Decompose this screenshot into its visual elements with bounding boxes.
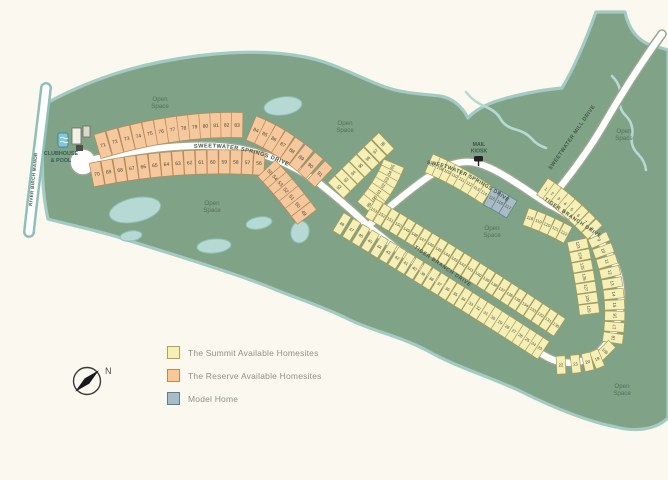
open-space-label: OpenSpace [613, 383, 631, 397]
lot-number: 65 [152, 163, 158, 170]
open-space-line: Open [616, 128, 632, 135]
legend-label-summit: The Summit Available Homesites [188, 348, 319, 358]
lot-number: 78 [181, 125, 187, 132]
pool-icon [58, 133, 68, 147]
open-space-line: Space [151, 103, 169, 110]
lot-number: 57 [244, 160, 250, 166]
lot-number: 67 [129, 165, 136, 172]
lot-number: 77 [169, 127, 176, 134]
open-space-line: Space [483, 232, 501, 239]
open-space-label: OpenSpace [615, 128, 633, 142]
open-space-label: OpenSpace [336, 120, 354, 134]
lot-number: 68 [117, 167, 124, 174]
lot-number: 56 [256, 161, 262, 167]
open-space-line: Space [336, 127, 354, 134]
open-space-line: Space [615, 135, 633, 142]
mail-kiosk-label: KIOSK [471, 149, 488, 155]
summit-swatch [167, 346, 180, 359]
open-space-line: Open [152, 96, 168, 103]
lot-number: 82 [224, 123, 230, 129]
legend-row-summit: The Summit Available Homesites [167, 346, 322, 359]
lot-number: 63 [175, 161, 181, 167]
legend-label-model: Model Home [188, 394, 238, 404]
legend-label-reserve: The Reserve Available Homesites [188, 371, 322, 381]
lot-number: 79 [192, 124, 198, 131]
lot-number: 62 [187, 160, 193, 166]
legend-row-model: Model Home [167, 392, 322, 405]
open-space-line: Open [614, 383, 630, 390]
lot-number: 22 [558, 362, 564, 367]
open-space-line: Space [613, 390, 631, 397]
site-map: 7172737475767778798081828384858687888990… [0, 0, 668, 480]
lot-number: 129 [586, 305, 592, 313]
open-space-line: Open [204, 200, 220, 207]
site-map-stage: 7172737475767778798081828384858687888990… [0, 0, 668, 480]
lot-number: 64 [163, 162, 169, 168]
legend: The Summit Available Homesites The Reser… [167, 346, 322, 405]
compass-north-label: N [105, 366, 112, 376]
lot-number: 83 [234, 123, 240, 129]
lot-number: 61 [198, 160, 204, 166]
lot-number: 81 [213, 123, 219, 129]
open-space-line: Open [337, 120, 353, 127]
lot-number: 128 [585, 295, 591, 303]
legend-row-reserve: The Reserve Available Homesites [167, 369, 322, 382]
open-space-label: OpenSpace [483, 225, 501, 239]
clubhouse-building-icon [83, 126, 90, 137]
mail-kiosk-label: MAIL [473, 142, 487, 148]
open-space-label: OpenSpace [151, 96, 169, 110]
clubhouse-label: CLUBHOUSE [44, 151, 79, 157]
lot-number: 66 [140, 164, 146, 171]
lot-number: 80 [202, 123, 208, 129]
lot-number: 16 [612, 313, 617, 319]
lot-number: 58 [233, 160, 239, 166]
lot-number: 59 [221, 160, 227, 166]
lot-number: 15 [612, 302, 617, 308]
clubhouse-building-icon [72, 128, 81, 144]
model-home-swatch [167, 392, 180, 405]
open-space-label: OpenSpace [203, 200, 221, 214]
reserve-swatch [167, 369, 180, 382]
open-space-line: Open [484, 225, 500, 232]
lot-number: 60 [210, 160, 216, 166]
mailbox-icon [474, 156, 483, 162]
clubhouse-label: & POOL [51, 158, 72, 164]
open-space-line: Space [203, 207, 221, 214]
